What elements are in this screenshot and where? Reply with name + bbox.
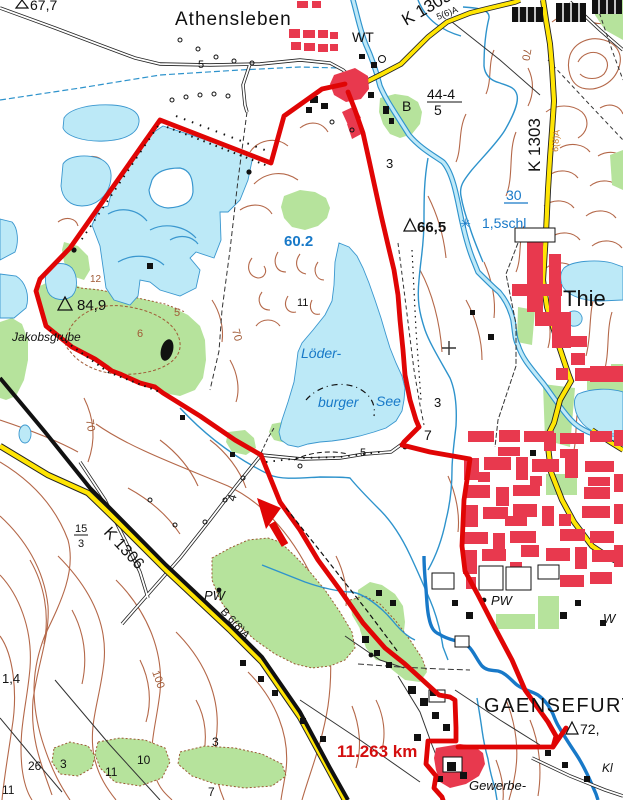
svg-text:5: 5: [198, 59, 204, 71]
svg-text:Thie: Thie: [563, 286, 606, 311]
svg-text:26: 26: [28, 759, 42, 773]
svg-text:See: See: [376, 393, 401, 409]
svg-text:3: 3: [386, 156, 393, 171]
svg-text:70: 70: [83, 418, 97, 432]
svg-text:B: B: [402, 98, 411, 114]
svg-text:11.263 km: 11.263 km: [337, 742, 417, 761]
svg-text:44-4: 44-4: [427, 86, 455, 102]
svg-text:66,5: 66,5: [417, 219, 446, 236]
svg-text:3: 3: [78, 538, 84, 550]
svg-text:15: 15: [75, 523, 87, 535]
svg-text:7: 7: [424, 427, 432, 443]
svg-text:Gewerbe-: Gewerbe-: [469, 778, 527, 793]
svg-text:5: 5: [360, 447, 366, 459]
svg-text:WT: WT: [352, 29, 374, 45]
svg-text:5: 5: [434, 102, 442, 118]
svg-text:7: 7: [208, 785, 215, 799]
svg-text:burger: burger: [318, 394, 360, 410]
svg-text:60.2: 60.2: [284, 233, 313, 250]
svg-text:K 1303: K 1303: [525, 118, 544, 172]
svg-text:3: 3: [60, 757, 67, 771]
svg-text:11: 11: [297, 297, 308, 309]
svg-text:5: 5: [174, 307, 180, 319]
svg-text:Löder-: Löder-: [301, 345, 342, 361]
svg-text:✳: ✳: [460, 216, 471, 231]
svg-text:3: 3: [434, 395, 441, 410]
svg-text:Kl: Kl: [602, 761, 613, 775]
svg-text:67,7: 67,7: [30, 0, 57, 13]
svg-text:12: 12: [90, 274, 102, 285]
svg-text:1,4: 1,4: [2, 671, 20, 686]
svg-text:11: 11: [105, 765, 118, 779]
svg-text:PW: PW: [204, 588, 227, 603]
svg-text:3: 3: [212, 735, 219, 749]
svg-text:10: 10: [137, 753, 151, 767]
svg-text:6: 6: [137, 328, 143, 340]
svg-text:W: W: [603, 611, 617, 626]
svg-text:30: 30: [506, 187, 522, 203]
svg-text:Athensleben: Athensleben: [175, 9, 292, 30]
svg-text:84,9: 84,9: [77, 297, 106, 314]
svg-text:72,: 72,: [580, 721, 599, 737]
svg-text:6(8)A: 6(8)A: [550, 129, 562, 152]
svg-text:GAENSEFURTH: GAENSEFURTH: [484, 695, 623, 717]
svg-text:1,5schl: 1,5schl: [482, 215, 526, 231]
svg-text:PW: PW: [491, 593, 514, 608]
svg-text:Jakobsgrube: Jakobsgrube: [11, 330, 81, 344]
svg-text:11: 11: [2, 783, 15, 797]
svg-text:70: 70: [519, 47, 533, 61]
